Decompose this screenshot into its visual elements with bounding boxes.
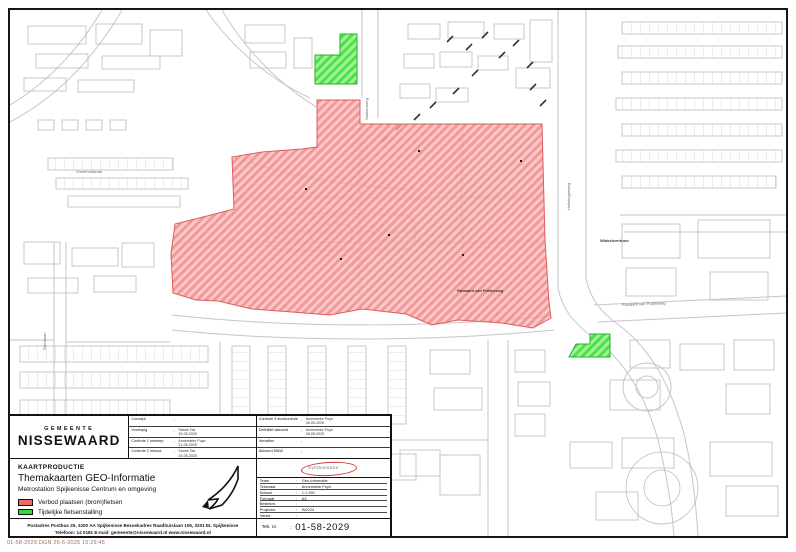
legend-swatch — [18, 509, 33, 516]
approval-row: Definitief akkoord:Annemieke Puyn26-05-2… — [257, 427, 390, 438]
title-block: GEMEENTE NISSEWAARD Concept:Voorlopig:Sa… — [10, 414, 392, 536]
restricted-zone — [171, 100, 551, 328]
north-arrow-icon — [198, 463, 244, 513]
address-line-2: Telefoon: 14 0181 E-mail: gemeente@nisse… — [10, 529, 256, 536]
drawing-details-table: Team:Geo-InformatieTekenaar:Annemieke Pu… — [257, 478, 390, 518]
approval-row: Vervallen: — [257, 438, 390, 449]
street-label: Winkelcentrum — [600, 238, 629, 243]
legend-swatch — [18, 499, 33, 506]
stamp-box: Symbolisatie — [257, 459, 390, 478]
address-line-1: Postadres Postbus 25, 3200 AA Spijkeniss… — [10, 522, 256, 529]
approval-row: Voorlopig:Sanne Tas19-05-2025 — [129, 427, 255, 438]
address-footer: Postadres Postbus 25, 3200 AA Spijkeniss… — [10, 519, 257, 536]
municipality-logo: GEMEENTE NISSEWAARD — [10, 416, 129, 458]
file-note: 01-58-2029.DGN 26-5-2025 15:29:45 — [7, 540, 105, 546]
approval-row: Controle 1 ontwerp:Annemieke Puyn21-05-2… — [129, 438, 255, 449]
street-label: Ruwaard van Puttenweg — [457, 288, 504, 293]
street-label: Hekelingseweg — [566, 183, 571, 210]
detail-row: Versie: — [260, 513, 387, 518]
legend-label: Tijdelijke fietsenstalling — [38, 509, 102, 516]
logo-nissewaard-text: NISSEWAARD — [18, 433, 121, 448]
street-label: Stationsweg — [364, 98, 369, 120]
teknr-label: Tek. nr. — [262, 525, 290, 530]
approval-row: Controle 2 inhoud:Sanne Tas23-05-2025 — [129, 448, 255, 458]
temporary-parking-zone-north — [315, 34, 357, 84]
approval-row: Controle 3 eindcontrole:Annemieke Puyn26… — [257, 416, 390, 427]
drawing-number-box: Tek. nr. : 01-58-2029 — [257, 519, 390, 536]
teknr-value: 01-58-2029 — [295, 522, 350, 533]
map-sheet-frame: Ruwaard van PuttenwegRuwaard van Puttenw… — [8, 8, 788, 538]
temporary-parking-zone-east — [569, 334, 610, 357]
logo-gemeente-text: GEMEENTE — [44, 426, 94, 432]
street-label: Eikenlaan — [42, 332, 47, 350]
map-title-panel: KAARTPRODUCTIE Themakaarten GEO-Informat… — [10, 459, 257, 518]
legend-label: Verbod plaatsen (brom)fietsen — [38, 499, 122, 506]
street-label: Vredehofstraat — [76, 169, 103, 174]
street-label: Ruwaard van Puttenweg — [622, 300, 666, 307]
red-oval-stamp — [300, 461, 357, 478]
approval-row: Akkoord M&W: — [257, 448, 390, 458]
approval-table-right: Controle 3 eindcontrole:Annemieke Puyn26… — [257, 416, 390, 458]
approval-row: Concept: — [129, 416, 255, 427]
approval-table-left: Concept:Voorlopig:Sanne Tas19-05-2025Con… — [129, 416, 256, 458]
